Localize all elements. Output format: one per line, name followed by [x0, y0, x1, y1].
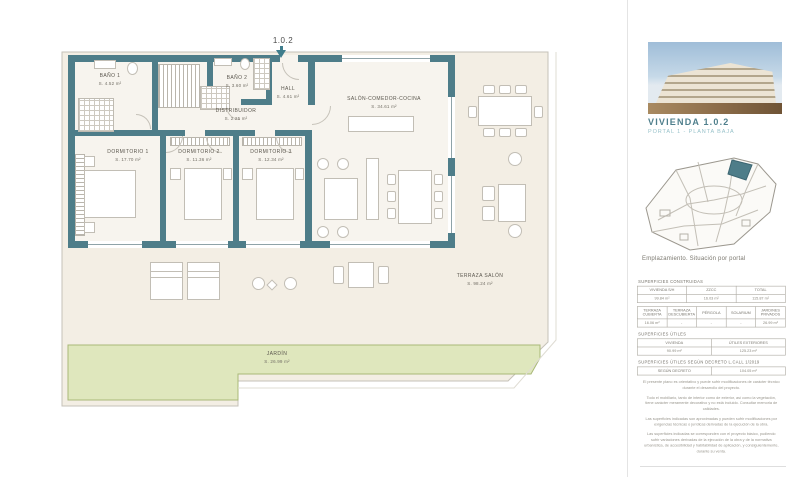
col-header: SOLARIUM	[726, 307, 756, 319]
wall	[205, 130, 255, 136]
cell: 16.03 m²	[687, 294, 736, 302]
toilet	[127, 62, 138, 75]
chair	[468, 106, 477, 118]
disclaimer-paragraph: Todo el mobiliario, tanto de interior co…	[643, 395, 780, 412]
room-label-distribuidor: DISTRIBUIDORS. 2.25 m²	[216, 107, 257, 122]
constructed-surfaces-title: SUPERFICIES CONSTRUIDAS	[638, 280, 785, 284]
armchair	[317, 158, 329, 170]
wall	[448, 55, 455, 97]
nightstand	[242, 168, 253, 180]
pouf	[284, 277, 297, 290]
cell: 26.99 m²	[756, 319, 786, 327]
chair	[515, 128, 527, 137]
col-header: ÚTILES EXTERIORES	[711, 339, 785, 347]
table-row: SEGÚN DECRETO 104.05 m²	[637, 367, 785, 375]
armchair	[337, 158, 349, 170]
chair	[515, 85, 527, 94]
window	[448, 176, 455, 233]
map-caption: Emplazamiento. Situación por portal	[642, 256, 745, 262]
sidebar-divider	[627, 0, 628, 477]
lounge-chair	[482, 206, 495, 221]
wall	[305, 130, 312, 241]
nightstand	[84, 156, 95, 167]
cell: 90.99 m²	[637, 347, 711, 355]
chair	[483, 85, 495, 94]
cell: -	[667, 319, 697, 327]
pouf	[508, 224, 522, 238]
lounge-table	[498, 184, 526, 222]
table-row: 90.99 m² 125.23 m²	[637, 347, 785, 355]
chair	[499, 128, 511, 137]
chair	[434, 208, 443, 219]
col-header: SEGÚN DECRETO	[637, 367, 711, 375]
nightstand	[170, 168, 181, 180]
chair	[387, 191, 396, 202]
pouf	[252, 277, 265, 290]
chair	[387, 208, 396, 219]
wall	[68, 241, 88, 248]
unit-title: VIVIENDA 1.0.2	[648, 117, 730, 127]
sink	[214, 58, 232, 66]
chair	[483, 128, 495, 137]
decree-surfaces-table: SEGÚN DECRETO 104.05 m²	[637, 367, 786, 376]
armchair	[337, 226, 349, 238]
cell: 16.06 m²	[637, 319, 667, 327]
room-label-bano1: BAÑO 1S. 4.52 m²	[99, 72, 122, 87]
chair	[534, 106, 543, 118]
cell: 115.87 m²	[736, 294, 785, 302]
site-plan-map	[638, 150, 786, 254]
cell: 104.05 m²	[711, 367, 785, 375]
chair	[499, 85, 511, 94]
wall	[298, 55, 342, 62]
headboard-closet	[242, 137, 302, 146]
sink	[94, 60, 116, 69]
disclaimer-paragraph: Las superficies indicadas son aproximada…	[643, 416, 780, 427]
wall	[308, 55, 315, 105]
room-label-dormitorio1: DORMITORIO 1S. 17.70 m²	[107, 148, 148, 163]
constructed-surfaces-table: VIVIENDA S/H ZZCC TOTAL 99.84 m² 16.03 m…	[637, 286, 786, 303]
wall	[448, 158, 455, 176]
shower	[253, 58, 270, 90]
sun-lounger	[150, 262, 183, 300]
col-header: TERRAZA CUBIERTA	[637, 307, 667, 319]
unit-subtitle: PORTAL 1 - PLANTA BAJA	[648, 129, 735, 135]
window	[246, 241, 300, 248]
nightstand	[295, 168, 304, 180]
room-label-dormitorio2: DORMITORIO 2S. 11.36 m²	[178, 148, 219, 163]
window	[176, 241, 228, 248]
col-header: JARDINES PRIVADOS	[756, 307, 786, 319]
room-label-hall: HALLS. 4.61 m²	[277, 85, 300, 100]
wall	[68, 55, 75, 248]
disclaimer-paragraph: El presente plano es orientativo y puede…	[643, 379, 780, 390]
table-row: 16.06 m² - - - 26.99 m²	[637, 319, 785, 327]
wall	[228, 241, 246, 248]
armchair	[317, 226, 329, 238]
cell: 125.23 m²	[711, 347, 785, 355]
building-render-image	[648, 42, 782, 114]
room-label-terraza: TERRAZA SALÓNS. 98.24 m²	[457, 272, 504, 287]
wall	[233, 130, 239, 241]
col-header: VIVIENDA S/H	[637, 286, 686, 294]
tv-console	[366, 158, 379, 220]
shower	[78, 98, 114, 132]
useful-surfaces-table: VIVIENDA ÚTILES EXTERIORES 90.99 m² 125.…	[637, 339, 786, 356]
col-header: ZZCC	[687, 286, 736, 294]
bed	[256, 168, 294, 220]
cell: -	[696, 319, 726, 327]
wall	[142, 241, 176, 248]
wardrobe	[158, 64, 200, 108]
disclaimer-paragraph: Las superficies indicadas se corresponde…	[643, 432, 780, 455]
building-shape	[656, 63, 776, 103]
exterior-surfaces-table: TERRAZA CUBIERTA TERRAZA DESCUBIERTA PÉR…	[637, 306, 786, 327]
window	[88, 241, 142, 248]
building-ground	[648, 103, 782, 114]
chair	[333, 266, 344, 284]
entrance-arrow-icon	[276, 50, 286, 58]
room-label-dormitorio3: DORMITORIO 3S. 12.34 m²	[250, 148, 291, 163]
legal-disclaimers: El presente plano es orientativo y puede…	[637, 379, 786, 454]
room-label-jardin: JARDÍNS. 26.99 m²	[264, 350, 289, 365]
floorplan-sheet: 1.0.2 BAÑO 1S. 4.52 m² BAÑO 2S. 3.60 m² …	[0, 0, 788, 477]
chair	[378, 266, 389, 284]
terrace-table	[348, 262, 374, 288]
decree-surfaces-title: SUPERFICIES ÚTILES SEGÚN DECRETO L.CALL …	[638, 361, 785, 365]
cell: -	[726, 319, 756, 327]
terrace-dining-table	[478, 96, 532, 126]
col-header: PÉRGOLA	[696, 307, 726, 319]
unit-number-label: 1.0.2	[273, 36, 293, 45]
garden-area	[68, 345, 540, 400]
sidebar-bottom-line	[640, 466, 786, 467]
wall	[300, 241, 330, 248]
room-label-salon: SALÓN-COMEDOR-COCINAS. 34.61 m²	[347, 95, 421, 110]
nightstand	[223, 168, 232, 180]
col-header: TOTAL	[736, 286, 785, 294]
window	[448, 97, 455, 158]
toilet	[240, 58, 250, 70]
bed	[84, 170, 136, 218]
col-header: TERRAZA DESCUBIERTA	[667, 307, 697, 319]
wall	[275, 130, 305, 136]
col-header: VIVIENDA	[637, 339, 711, 347]
window	[342, 55, 430, 62]
useful-surfaces-title: SUPERFICIES ÚTILES	[638, 333, 785, 337]
dining-table	[398, 170, 432, 224]
surfaces-panel: SUPERFICIES CONSTRUIDAS VIVIENDA S/H ZZC…	[637, 280, 786, 459]
lounge-chair	[482, 186, 495, 201]
sun-lounger	[187, 262, 220, 300]
kitchen-island	[348, 116, 414, 132]
chair	[434, 174, 443, 185]
chair	[434, 191, 443, 202]
coffee-table	[324, 178, 358, 220]
chair	[387, 174, 396, 185]
table-row: 99.84 m² 16.03 m² 115.87 m²	[637, 294, 785, 302]
nightstand	[84, 222, 95, 233]
window	[330, 241, 430, 248]
pouf	[508, 152, 522, 166]
cell: 99.84 m²	[637, 294, 686, 302]
wall	[448, 233, 455, 248]
bed	[184, 168, 222, 220]
room-label-bano2: BAÑO 2S. 3.60 m²	[226, 74, 249, 89]
